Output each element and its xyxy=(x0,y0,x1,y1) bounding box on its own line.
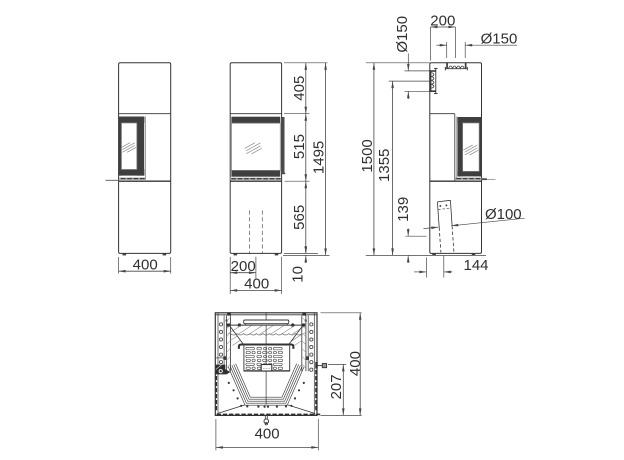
svg-text:139: 139 xyxy=(395,197,412,222)
svg-text:10: 10 xyxy=(289,266,306,283)
svg-text:144: 144 xyxy=(463,257,488,274)
svg-text:1495: 1495 xyxy=(311,141,328,174)
svg-text:400: 400 xyxy=(244,276,269,293)
svg-text:400: 400 xyxy=(133,257,158,274)
svg-text:207: 207 xyxy=(328,374,345,399)
svg-text:Ø150: Ø150 xyxy=(394,16,411,53)
svg-text:200: 200 xyxy=(231,258,256,275)
svg-text:405: 405 xyxy=(291,76,308,101)
svg-text:Ø100: Ø100 xyxy=(485,206,522,223)
svg-text:515: 515 xyxy=(291,134,308,159)
svg-text:200: 200 xyxy=(430,12,455,29)
svg-text:400: 400 xyxy=(255,426,280,443)
svg-text:565: 565 xyxy=(291,205,308,230)
svg-text:Ø150: Ø150 xyxy=(481,30,518,47)
svg-text:1355: 1355 xyxy=(376,149,393,182)
svg-text:400: 400 xyxy=(347,351,364,376)
svg-text:1500: 1500 xyxy=(359,139,376,172)
